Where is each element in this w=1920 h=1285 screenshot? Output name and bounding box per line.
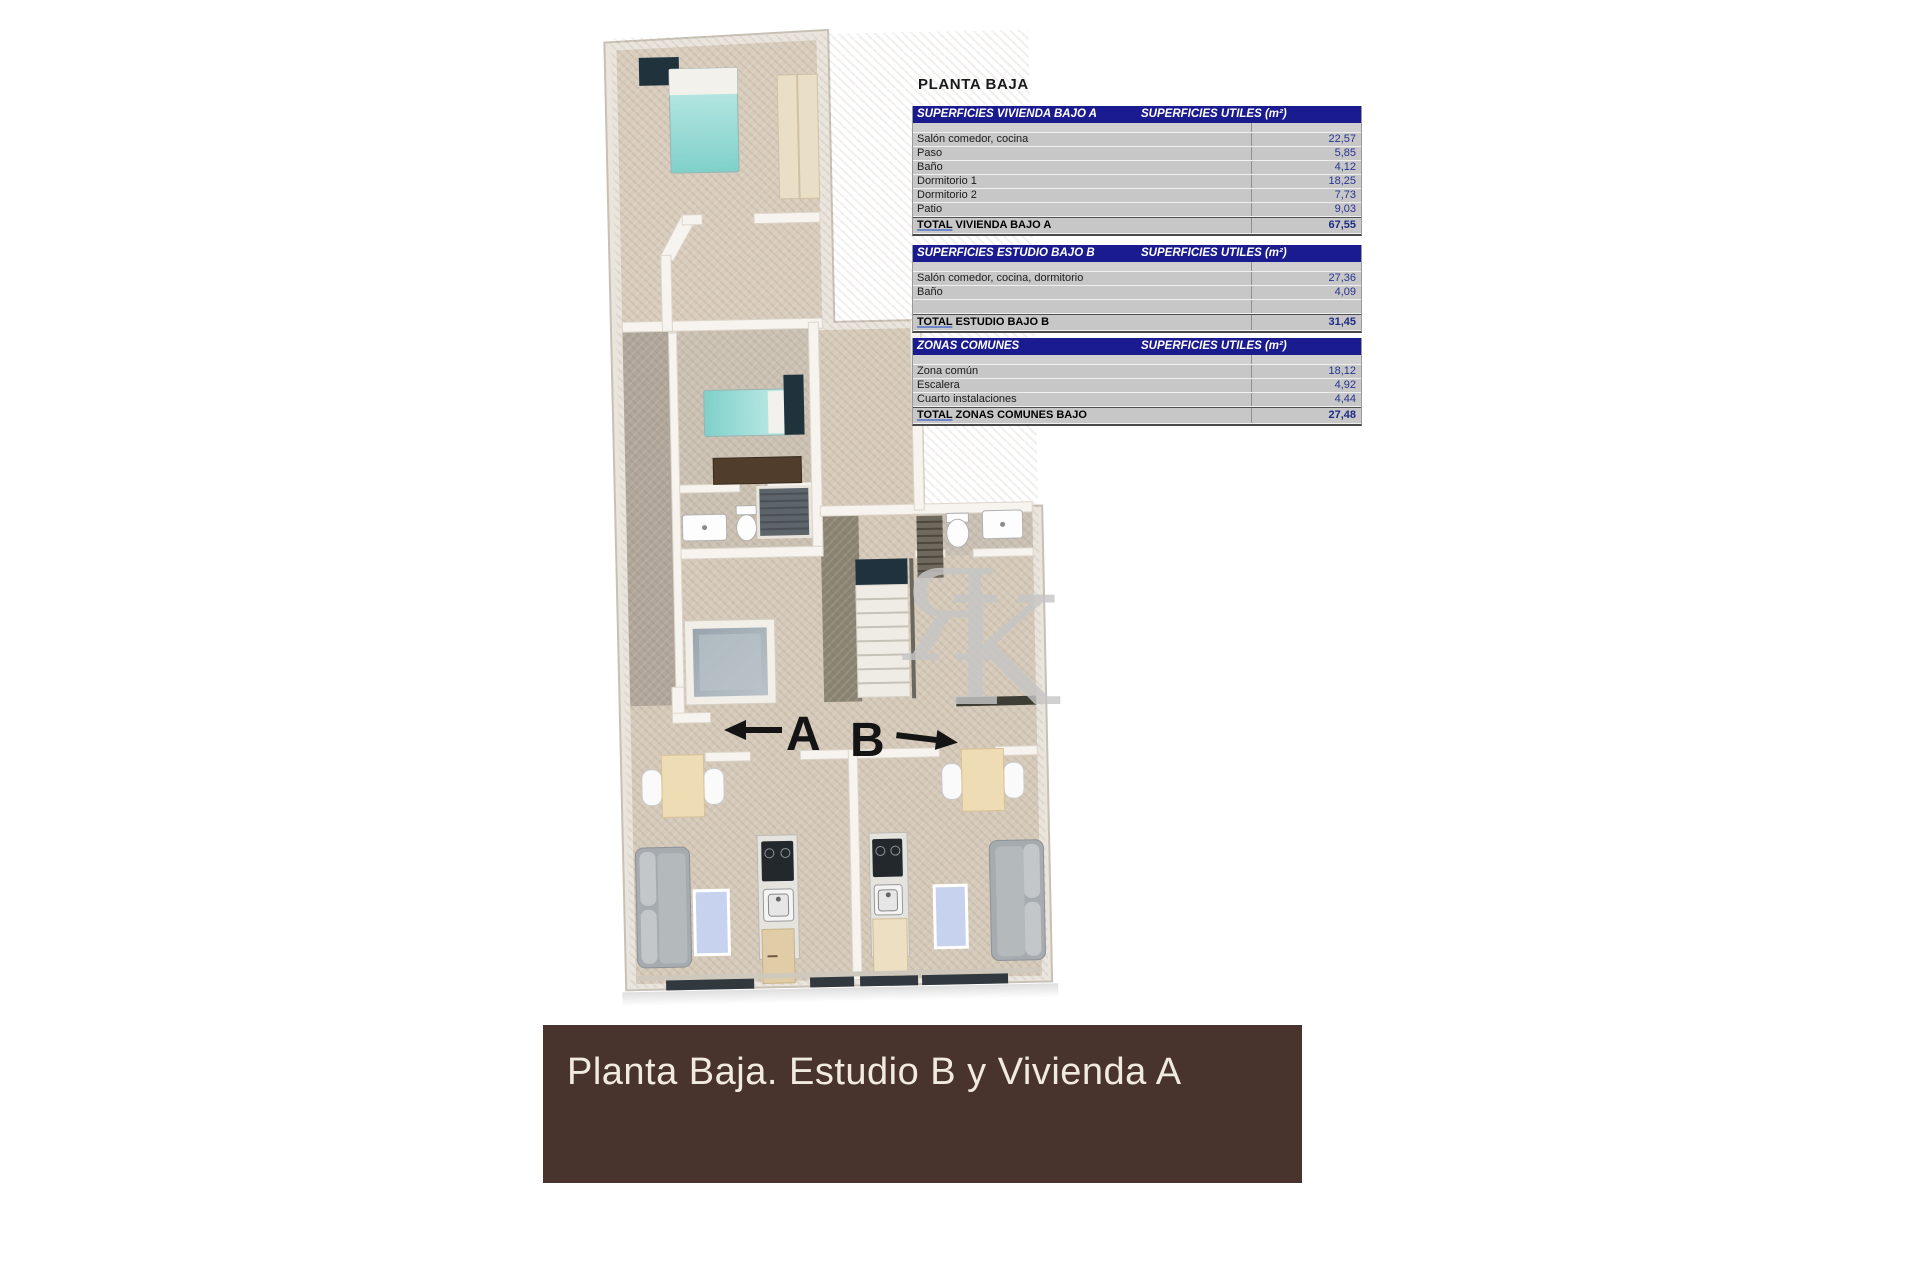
row-label: Paso — [913, 147, 1251, 160]
watermark-k: K — [946, 566, 1061, 740]
page-title: PLANTA BAJA — [918, 76, 1029, 93]
row-label: Baño — [913, 161, 1251, 174]
row-value: 18,12 — [1251, 365, 1361, 378]
spacer-row — [913, 355, 1361, 365]
sink-a — [682, 514, 727, 541]
row-value: 7,73 — [1251, 189, 1361, 202]
sofa-a — [635, 847, 692, 968]
shower — [758, 486, 811, 537]
caption-text: Planta Baja. Estudio B y Vivienda A — [567, 1051, 1302, 1094]
spacer-row — [913, 123, 1361, 133]
row-label: Salón comedor, cocina, dormitorio — [913, 272, 1251, 285]
row-value: 4,44 — [1251, 393, 1361, 406]
table-header-right: SUPERFICIES UTILES (m²) — [1141, 338, 1287, 355]
row-label: Dormitorio 2 — [913, 189, 1251, 202]
table-row: Salón comedor, cocina, dormitorio27,36 — [913, 272, 1361, 286]
row-value: 4,09 — [1251, 286, 1361, 299]
table-row: Dormitorio 118,25 — [913, 175, 1361, 189]
total-label: TOTAL ESTUDIO BAJO B — [913, 315, 1251, 330]
row-value — [1251, 300, 1361, 313]
table-row: Dormitorio 27,73 — [913, 189, 1361, 203]
row-label: Cuarto instalaciones — [913, 393, 1251, 406]
table-header: ZONAS COMUNES SUPERFICIES UTILES (m²) — [913, 338, 1361, 355]
surface-table-zonas-comunes: ZONAS COMUNES SUPERFICIES UTILES (m²) Zo… — [912, 338, 1362, 426]
row-label: Dormitorio 1 — [913, 175, 1251, 188]
row-value: 4,12 — [1251, 161, 1361, 174]
table-header: SUPERFICIES VIVIENDA BAJO A SUPERFICIES … — [913, 106, 1361, 123]
table-header: SUPERFICIES ESTUDIO BAJO B SUPERFICIES U… — [913, 245, 1361, 262]
patio-skylight — [685, 619, 777, 705]
total-value: 31,45 — [1251, 315, 1361, 330]
sofa-b — [989, 840, 1046, 961]
table-row: Cuarto instalaciones4,44 — [913, 393, 1361, 407]
row-value: 9,03 — [1251, 203, 1361, 216]
table-row: Patio9,03 — [913, 203, 1361, 217]
kitchen-island-b — [869, 832, 910, 981]
label-b: B — [850, 714, 885, 767]
table-header-right: SUPERFICIES UTILES (m²) — [1141, 245, 1287, 262]
double-bed — [669, 68, 739, 173]
total-row: TOTAL ESTUDIO BAJO B 31,45 — [913, 314, 1361, 331]
table-row: Escalera4,92 — [913, 379, 1361, 393]
table-row: Zona común18,12 — [913, 365, 1361, 379]
surface-table-estudio-b: SUPERFICIES ESTUDIO BAJO B SUPERFICIES U… — [912, 245, 1362, 333]
rug-b — [934, 885, 967, 948]
row-label: Salón comedor, cocina — [913, 133, 1251, 146]
label-a: A — [786, 708, 821, 761]
row-label: Patio — [913, 203, 1251, 216]
table-header-left: ZONAS COMUNES — [913, 340, 1019, 352]
total-label: TOTAL VIVIENDA BAJO A — [913, 218, 1251, 233]
row-value: 22,57 — [1251, 133, 1361, 146]
rug-a — [694, 890, 729, 955]
row-label: Baño — [913, 286, 1251, 299]
row-label: Escalera — [913, 379, 1251, 392]
kitchen-island-a — [757, 835, 800, 984]
table-header-left: SUPERFICIES VIVIENDA BAJO A — [913, 108, 1097, 120]
row-value: 4,92 — [1251, 379, 1361, 392]
row-label: Zona común — [913, 365, 1251, 378]
spacer-row — [913, 262, 1361, 272]
row-label — [913, 300, 1251, 313]
wardrobe — [777, 74, 820, 199]
total-value: 67,55 — [1251, 218, 1361, 233]
table-row: Baño4,09 — [913, 286, 1361, 300]
row-value: 27,36 — [1251, 272, 1361, 285]
table-row — [913, 300, 1361, 314]
surface-table-vivienda-a: SUPERFICIES VIVIENDA BAJO A SUPERFICIES … — [912, 106, 1362, 236]
table-row: Paso5,85 — [913, 147, 1361, 161]
total-value: 27,48 — [1251, 408, 1361, 423]
table-header-right: SUPERFICIES UTILES (m²) — [1141, 106, 1287, 123]
dresser — [713, 457, 802, 485]
row-value: 18,25 — [1251, 175, 1361, 188]
row-value: 5,85 — [1251, 147, 1361, 160]
toilet-a — [736, 506, 757, 541]
table-row: Salón comedor, cocina22,57 — [913, 133, 1361, 147]
caption-banner: Planta Baja. Estudio B y Vivienda A — [543, 1025, 1302, 1183]
sink-b — [982, 510, 1023, 539]
total-row: TOTAL VIVIENDA BAJO A 67,55 — [913, 217, 1361, 234]
total-row: TOTAL ZONAS COMUNES BAJO 27,48 — [913, 407, 1361, 424]
total-label: TOTAL ZONAS COMUNES BAJO — [913, 408, 1251, 423]
table-row: Baño4,12 — [913, 161, 1361, 175]
table-header-left: SUPERFICIES ESTUDIO BAJO B — [913, 247, 1095, 259]
